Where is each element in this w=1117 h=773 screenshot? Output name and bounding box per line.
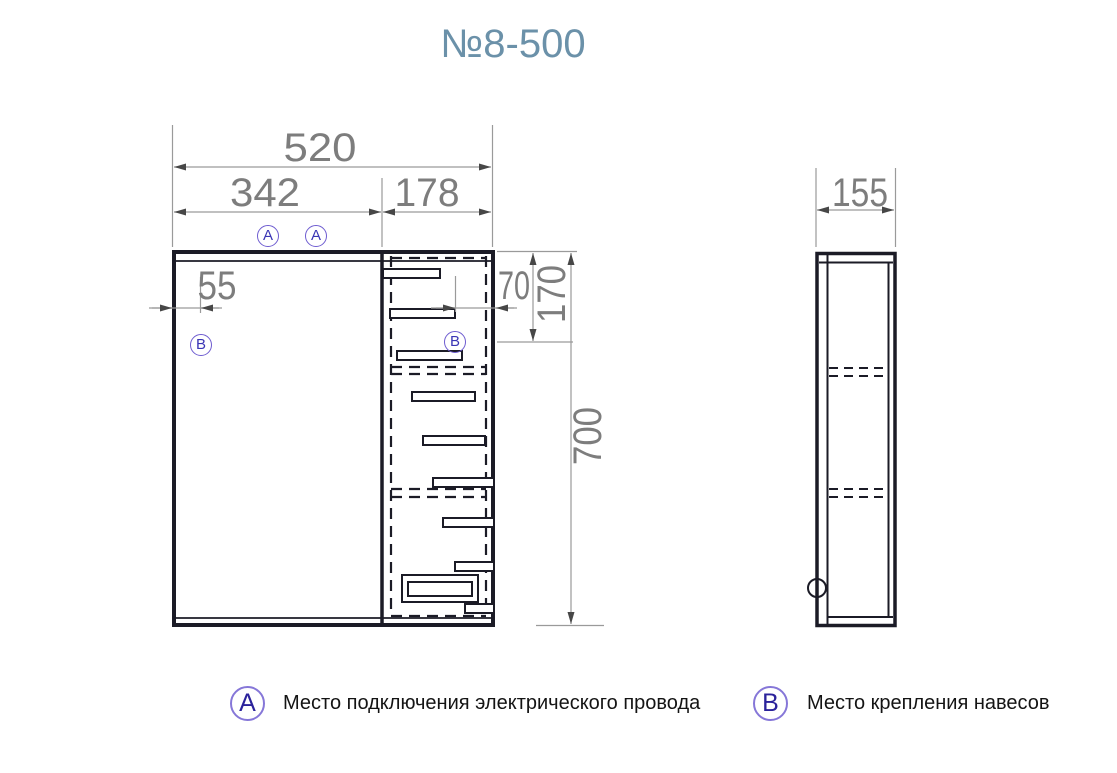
shelf-edge xyxy=(465,604,494,613)
shelf-edge xyxy=(390,309,455,318)
shelf-edge xyxy=(383,269,440,278)
legend-marker-a: A xyxy=(230,686,265,721)
shelf-edge xyxy=(455,562,494,571)
technical-drawing-page: 520 342 178 55 70 170 700 155 №8-500 A A… xyxy=(0,0,1117,773)
marker-b-2: B xyxy=(444,331,466,353)
shelf-edge xyxy=(443,518,494,527)
side-hidden-shelves xyxy=(829,368,887,497)
dimension-labels: 520 342 178 55 70 170 700 155 xyxy=(198,126,889,465)
legend-text-b: Место крепления навесов xyxy=(807,692,1050,715)
shelf-edge xyxy=(412,392,475,401)
dim-155: 155 xyxy=(832,171,888,215)
marker-b-1: B xyxy=(190,334,212,356)
dim-178: 178 xyxy=(395,171,460,215)
front-view xyxy=(149,125,604,626)
page-title: №8-500 xyxy=(363,22,663,67)
shelf-edge xyxy=(433,478,494,487)
shelf-edge xyxy=(423,436,485,445)
dim-700: 700 xyxy=(566,407,610,465)
side-view xyxy=(808,168,896,626)
legend-text-a: Место подключения электрического провода xyxy=(283,692,700,715)
cabinet-drawing: 520 342 178 55 70 170 700 155 xyxy=(0,0,1117,773)
bottom-box-inner xyxy=(408,582,472,596)
marker-a-2: A xyxy=(305,225,327,247)
legend-marker-b: B xyxy=(753,686,788,721)
dim-70: 70 xyxy=(498,264,530,308)
dim-342: 342 xyxy=(230,171,300,215)
shelf-edges xyxy=(383,269,494,613)
marker-a-1: A xyxy=(257,225,279,247)
side-outline xyxy=(817,254,895,626)
dim-55: 55 xyxy=(198,264,237,308)
dim-520: 520 xyxy=(284,126,357,170)
dim-170: 170 xyxy=(530,265,574,323)
